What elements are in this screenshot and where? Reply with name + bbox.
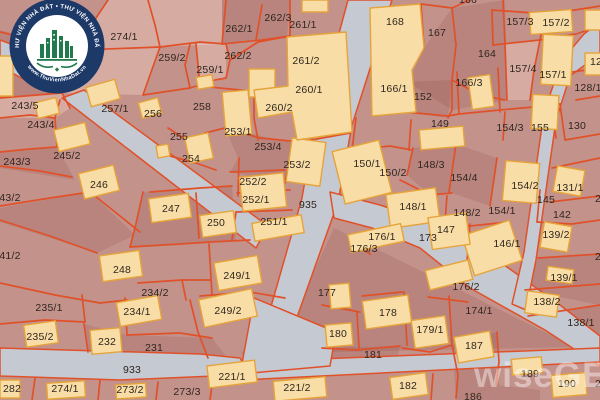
parcel-label-273-3: 273/3 xyxy=(173,386,200,398)
parcel-label-152: 152 xyxy=(414,91,432,103)
parcel-label-243-5: 243/5 xyxy=(11,100,38,112)
cadastral-map: 262/3262/1261/1274/1262/2259/2261/2259/1… xyxy=(0,0,600,400)
parcel-label-174-1: 174/1 xyxy=(465,305,492,317)
parcel-label-234-2: 234/2 xyxy=(141,287,168,299)
parcel-label-157-4: 157/4 xyxy=(509,63,536,75)
parcel-label-148-3: 148/3 xyxy=(417,159,444,171)
parcel-label-139-2: 139/2 xyxy=(542,229,569,241)
parcel-label-176-1: 176/1 xyxy=(368,231,395,243)
parcel-label-221-2: 221/2 xyxy=(283,382,310,394)
parcel-label-257-1: 257/1 xyxy=(101,103,128,115)
parcel-label-246: 246 xyxy=(90,179,108,191)
parcel-label-166-3: 166/3 xyxy=(455,77,482,89)
partial-parcel-label-166: 166 xyxy=(459,0,477,6)
parcel-label-176-2: 176/2 xyxy=(452,281,479,293)
parcel-label-148-1: 148/1 xyxy=(399,201,426,213)
parcel-label-142: 142 xyxy=(553,209,571,221)
parcel-label-181: 181 xyxy=(364,349,382,361)
parcel-label-166-1: 166/1 xyxy=(380,83,407,95)
parcel-label-168: 168 xyxy=(386,16,404,28)
parcel-label-155: 155 xyxy=(531,122,549,134)
parcel-label-128-1: 128/1 xyxy=(574,82,600,94)
partial-parcel-label-43-2: 43/2 xyxy=(0,192,21,204)
parcel-label-247: 247 xyxy=(162,203,180,215)
partial-parcel-label-241: 241 xyxy=(595,251,600,263)
parcel-label-258: 258 xyxy=(193,101,211,113)
parcel-label-935: 935 xyxy=(299,199,317,211)
parcel-label-154-4: 154/4 xyxy=(450,172,477,184)
parcel-label-234-1: 234/1 xyxy=(123,306,150,318)
parcel-label-261-2: 261/2 xyxy=(292,55,319,67)
parcel-label-250: 250 xyxy=(207,217,225,229)
parcel-label-252-2: 252/2 xyxy=(239,176,266,188)
parcel-label-261-1: 261/1 xyxy=(289,19,316,31)
parcel-label-176-3: 176/3 xyxy=(350,243,377,255)
parcel-label-180: 180 xyxy=(329,328,347,340)
parcel-label-259-2: 259/2 xyxy=(158,52,185,64)
parcel-label-177: 177 xyxy=(318,287,336,299)
parcel-label-245-2: 245/2 xyxy=(53,150,80,162)
parcel-label-138-2: 138/2 xyxy=(533,296,560,308)
parcel-label-252-1: 252/1 xyxy=(242,194,269,206)
wisegeek-watermark: wiseGEEK xyxy=(474,356,600,396)
parcel-label-256: 256 xyxy=(144,108,162,120)
parcel-label-221-1: 221/1 xyxy=(218,371,245,383)
parcel-label-255: 255 xyxy=(170,131,188,143)
parcel-label-262-3: 262/3 xyxy=(264,12,291,24)
parcel-label-274-1: 274/1 xyxy=(110,31,137,43)
parcel-label-130: 130 xyxy=(568,120,586,132)
parcel-label-231: 231 xyxy=(145,342,163,354)
parcel-label-933: 933 xyxy=(123,364,141,376)
parcel-label-178: 178 xyxy=(379,307,397,319)
parcel-label-154-2: 154/2 xyxy=(511,180,538,192)
parcel-label-131-1: 131/1 xyxy=(556,182,583,194)
parcel-label-138-1: 138/1 xyxy=(567,317,594,329)
parcel-label-262-1: 262/1 xyxy=(225,23,252,35)
parcel-label-253-2: 253/2 xyxy=(283,159,310,171)
parcel-label-145: 145 xyxy=(537,194,555,206)
partial-parcel-label-124: 124 xyxy=(590,56,600,68)
parcel-label-235-1: 235/1 xyxy=(35,302,62,314)
parcel-label-253-4: 253/4 xyxy=(254,141,281,153)
parcel-label-173: 173 xyxy=(419,232,437,244)
parcel-label-187: 187 xyxy=(465,340,483,352)
parcel-label-149: 149 xyxy=(431,118,449,130)
parcel-label-147: 147 xyxy=(437,224,455,236)
parcel-label-150-1: 150/1 xyxy=(353,158,380,170)
parcel-label-260-2: 260/2 xyxy=(265,102,292,114)
parcel-label-282: 282 xyxy=(3,383,21,395)
parcel-label-249-1: 249/1 xyxy=(223,270,250,282)
parcel-label-157-1: 157/1 xyxy=(539,69,566,81)
parcel-label-260-1: 260/1 xyxy=(295,84,322,96)
parcel-label-243-4: 243/4 xyxy=(27,119,54,131)
parcel-label-259-1: 259/1 xyxy=(196,64,223,76)
parcel-label-179-1: 179/1 xyxy=(416,324,443,336)
thuviennhadat-logo-badge: THƯ VIỆN NHÀ ĐẤT • THƯ VIỆN NHÀ ĐẤT www.… xyxy=(7,0,107,96)
parcel-label-157-3: 157/3 xyxy=(506,16,533,28)
parcel-label-251-1: 251/1 xyxy=(260,216,287,228)
parcel-label-167: 167 xyxy=(428,27,446,39)
parcel-label-154-3: 154/3 xyxy=(496,122,523,134)
parcel-label-154-1: 154/1 xyxy=(488,205,515,217)
parcel-label-249-2: 249/2 xyxy=(214,305,241,317)
parcel-label-146-1: 146/1 xyxy=(493,238,520,250)
parcel-label-148-2: 148/2 xyxy=(453,207,480,219)
parcel-label-157-2: 157/2 xyxy=(542,17,569,29)
partial-parcel-label-2: 2 xyxy=(595,193,600,205)
parcel-label-232: 232 xyxy=(98,336,116,348)
parcel-label-262-2: 262/2 xyxy=(224,50,251,62)
parcel-label-150-2: 150/2 xyxy=(379,167,406,179)
parcel-label-243-3: 243/3 xyxy=(3,156,30,168)
parcel-label-253-1: 253/1 xyxy=(224,126,251,138)
parcel-label-274-1: 274/1 xyxy=(51,383,78,395)
parcel-label-254: 254 xyxy=(182,153,200,165)
parcel-label-273-2: 273/2 xyxy=(116,384,143,396)
parcel-label-164: 164 xyxy=(478,48,496,60)
parcel-label-182: 182 xyxy=(399,380,417,392)
partial-parcel-label-41-2: 41/2 xyxy=(0,250,21,262)
parcel-label-139-1: 139/1 xyxy=(550,272,577,284)
parcel-label-248: 248 xyxy=(113,264,131,276)
parcel-label-235-2: 235/2 xyxy=(26,331,53,343)
